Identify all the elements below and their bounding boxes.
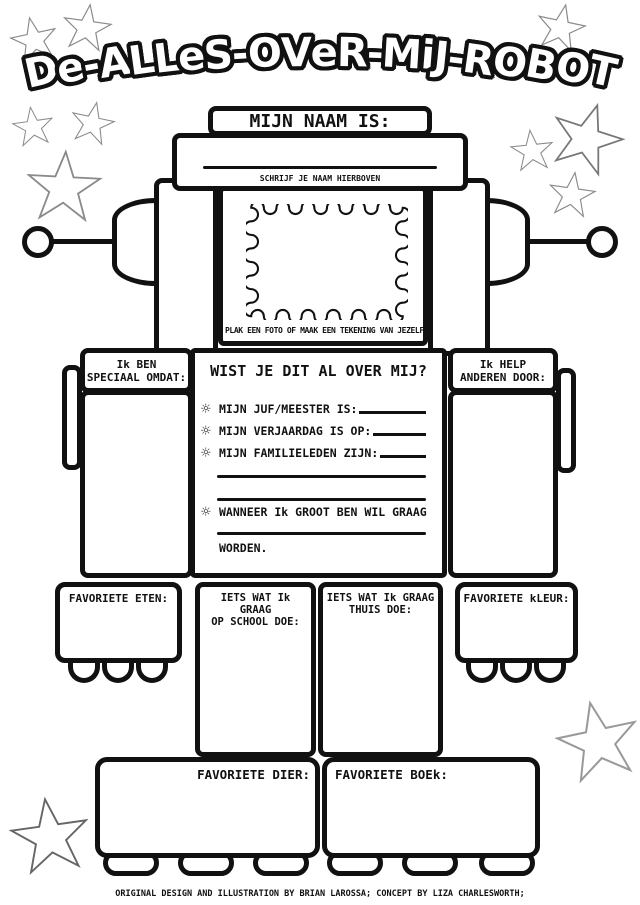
sun-bullet-icon: ☼ bbox=[201, 505, 219, 519]
star-icon bbox=[24, 146, 104, 226]
wish-row: ☼ WANNEER Ik GROOT BEN WIL GRAAG bbox=[201, 505, 426, 519]
left-arm-header: Ik BEN SPECIAAL OMDAT: bbox=[80, 348, 193, 393]
right-leg-box[interactable]: IETS WAT Ik GRAAG THUIS DOE: bbox=[318, 582, 443, 757]
photo-frame[interactable] bbox=[246, 204, 408, 320]
left-hand-box[interactable]: FAVORIETE ETEN: bbox=[55, 582, 182, 663]
fact-input-line[interactable] bbox=[373, 423, 426, 436]
worksheet-page: De-ALLeS-OVeR-MiJ-ROBOT PLAK EEN FOTO OF… bbox=[0, 0, 640, 905]
right-antenna-ball bbox=[586, 226, 618, 258]
star-icon bbox=[5, 790, 95, 880]
star-icon bbox=[548, 690, 640, 790]
left-leg-box[interactable]: IETS WAT Ik GRAAG OP SCHOOL DOE: bbox=[195, 582, 316, 757]
right-leg-label: IETS WAT Ik GRAAG THUIS DOE: bbox=[326, 592, 435, 616]
left-antenna-ball bbox=[22, 226, 54, 258]
right-leg-label-line2: THUIS DOE: bbox=[349, 604, 412, 616]
fact-label: MIJN VERJAARDAG IS OP: bbox=[219, 424, 371, 438]
right-hand-box[interactable]: FAVORIETE kLEUR: bbox=[455, 582, 578, 663]
right-foot-box[interactable]: FAVORIETE BOEk: bbox=[322, 757, 540, 858]
fact-label: MIJN FAMILIELEDEN ZIJN: bbox=[219, 446, 378, 460]
fact-row: ☼ MIJN JUF/MEESTER IS: bbox=[201, 401, 426, 416]
right-antenna-rod bbox=[528, 239, 588, 244]
sun-bullet-icon: ☼ bbox=[201, 402, 219, 416]
credit-line: ORIGINAL DESIGN AND ILLUSTRATION BY BRIA… bbox=[0, 889, 640, 899]
fact-input-line[interactable] bbox=[359, 401, 426, 414]
star-icon bbox=[9, 102, 56, 149]
torso-header: WIST JE DIT AL OVER MIJ? bbox=[195, 362, 442, 380]
right-foot-label: FAVORIETE BOEk: bbox=[335, 767, 448, 782]
left-arm-writing-area[interactable] bbox=[80, 390, 193, 578]
left-arm-label-line2: SPECIAAL OMDAT: bbox=[85, 371, 188, 384]
right-shoulder-piston bbox=[556, 368, 576, 473]
right-ear-icon bbox=[486, 198, 530, 286]
right-hand-label: FAVORIETE kLEUR: bbox=[463, 592, 570, 605]
robot-torso: WIST JE DIT AL OVER MIJ? ☼ MIJN JUF/MEES… bbox=[190, 348, 447, 578]
robot-head: PLAK EEN FOTO OF MAAK EEN TEKENING VAN J… bbox=[218, 186, 428, 346]
left-leg-label: IETS WAT Ik GRAAG OP SCHOOL DOE: bbox=[203, 592, 308, 628]
sun-bullet-icon: ☼ bbox=[201, 424, 219, 438]
right-ear-plate bbox=[428, 178, 490, 356]
writing-line[interactable] bbox=[217, 532, 426, 535]
fact-row: ☼ MIJN VERJAARDAG IS OP: bbox=[201, 423, 426, 438]
name-input-line[interactable] bbox=[203, 166, 437, 169]
left-foot-box[interactable]: FAVORIETE DIER: bbox=[95, 757, 320, 858]
wish-label: WANNEER Ik GROOT BEN WIL GRAAG bbox=[219, 505, 427, 519]
sun-bullet-icon: ☼ bbox=[201, 446, 219, 460]
name-caption: SCHRIJF JE NAAM HIERBOVEN bbox=[177, 174, 463, 183]
left-arm-label-line1: Ik BEN bbox=[85, 358, 188, 371]
left-shoulder-piston bbox=[62, 365, 82, 470]
left-leg-label-line2: OP SCHOOL DOE: bbox=[211, 616, 300, 628]
left-ear-plate bbox=[154, 178, 218, 356]
wish-suffix: WORDEN. bbox=[219, 541, 267, 555]
left-hand-label: FAVORIETE ETEN: bbox=[63, 592, 174, 605]
left-foot-label: FAVORIETE DIER: bbox=[197, 767, 310, 782]
writing-line[interactable] bbox=[217, 475, 426, 478]
page-title: De-ALLeS-OVeR-MiJ-ROBOT bbox=[0, 30, 640, 76]
name-plate: SCHRIJF JE NAAM HIERBOVEN bbox=[172, 133, 468, 191]
photo-caption: PLAK EEN FOTO OF MAAK EEN TEKENING VAN J… bbox=[225, 326, 421, 336]
left-ear-icon bbox=[112, 198, 156, 286]
fact-label: MIJN JUF/MEESTER IS: bbox=[219, 402, 357, 416]
right-leg-label-line1: IETS WAT Ik GRAAG bbox=[327, 592, 434, 604]
right-arm-label-line2: ANDEREN DOOR: bbox=[453, 371, 553, 384]
left-antenna-rod bbox=[52, 239, 114, 244]
fact-row: ☼ MIJN FAMILIELEDEN ZIJN: bbox=[201, 445, 426, 460]
left-leg-label-line1: IETS WAT Ik GRAAG bbox=[221, 592, 291, 616]
right-arm-writing-area[interactable] bbox=[448, 390, 558, 578]
star-icon bbox=[545, 167, 599, 221]
writing-line[interactable] bbox=[217, 498, 426, 501]
right-arm-header: Ik HELP ANDEREN DOOR: bbox=[448, 348, 558, 393]
right-arm-label-line1: Ik HELP bbox=[453, 358, 553, 371]
name-header: MIJN NAAM IS: bbox=[208, 106, 432, 136]
fact-input-line[interactable] bbox=[380, 445, 426, 458]
star-icon bbox=[66, 96, 119, 149]
